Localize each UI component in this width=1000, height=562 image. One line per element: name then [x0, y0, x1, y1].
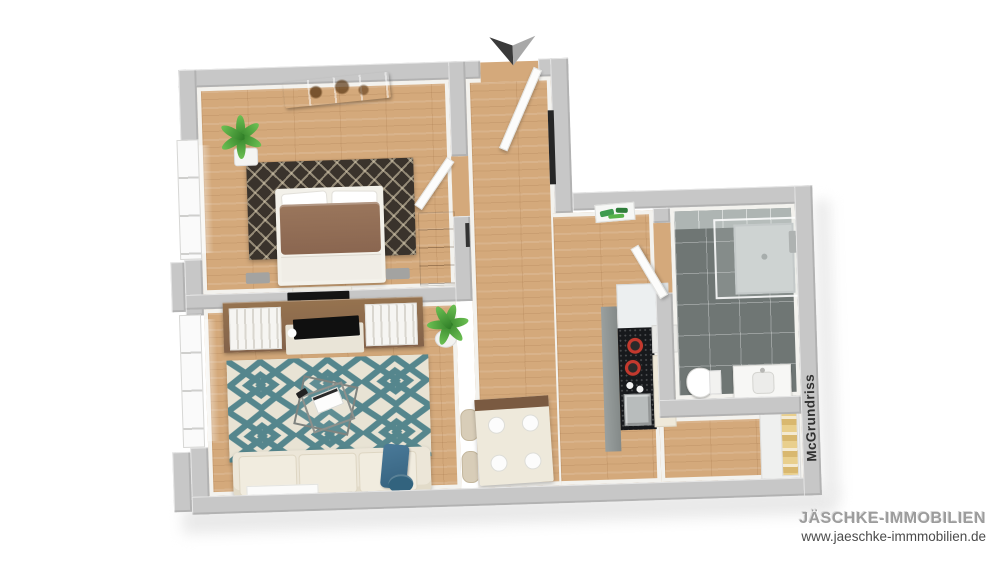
kitchen-countertop	[618, 327, 657, 430]
green-decor-sign	[594, 202, 635, 223]
bed-duvet	[280, 202, 382, 255]
toilet-tank	[709, 370, 722, 394]
sink-knob	[626, 382, 633, 389]
plate	[524, 452, 542, 470]
stove-burner	[624, 359, 643, 378]
living-plant-icon	[425, 301, 470, 348]
apartment-plan: McGrundriss	[0, 0, 1000, 562]
plate	[490, 454, 508, 472]
bedside-mat-left	[246, 272, 270, 284]
company-name: JÄSCHKE-IMMOBILIEN	[799, 510, 986, 528]
plate	[521, 414, 539, 432]
shelf-unit-right	[365, 303, 418, 347]
wall-bedroom-right-lower	[453, 216, 473, 301]
company-website: www.jaeschke-immmobilien.de	[799, 529, 986, 544]
plate	[487, 416, 505, 434]
stove-burner	[626, 337, 645, 356]
bedside-mat-right	[386, 268, 410, 280]
wall-bedroom-right-upper	[448, 61, 468, 156]
tv-sideboard	[223, 296, 424, 352]
shower-glass	[713, 217, 799, 300]
wall-left-upper	[178, 69, 198, 142]
bedroom-window	[176, 139, 202, 260]
green-mark	[608, 214, 624, 219]
green-mark	[616, 208, 628, 213]
shelf-unit-left	[229, 307, 282, 351]
bedroom-door-threshold	[451, 156, 470, 217]
kitchen-sink	[624, 393, 652, 426]
bedroom-plant-icon	[217, 111, 265, 162]
bed-footboard	[281, 254, 382, 282]
wardrobe-shelves	[780, 408, 799, 477]
window-sill-stub-upper	[170, 262, 186, 312]
bathroom-vanity	[733, 364, 792, 400]
sink-knob	[636, 386, 643, 393]
living-room-window	[179, 314, 205, 448]
compass-arrow-icon	[482, 29, 543, 73]
bedroom-wardrobe	[418, 211, 457, 286]
washbasin	[752, 371, 775, 394]
double-bed	[275, 186, 386, 286]
wall-bathroom-left-upper	[653, 208, 670, 224]
floor-plan-render: McGrundriss JÄSCHKE-IMMOBILIEN www.jaesc…	[0, 0, 1000, 562]
wall-bathroom-left-lower	[655, 293, 676, 408]
branding-block: JÄSCHKE-IMMOBILIEN www.jaeschke-immmobil…	[799, 510, 986, 544]
dining-table	[474, 395, 554, 486]
hall-picture	[465, 223, 470, 247]
window-sill-stub-lower	[172, 452, 192, 513]
